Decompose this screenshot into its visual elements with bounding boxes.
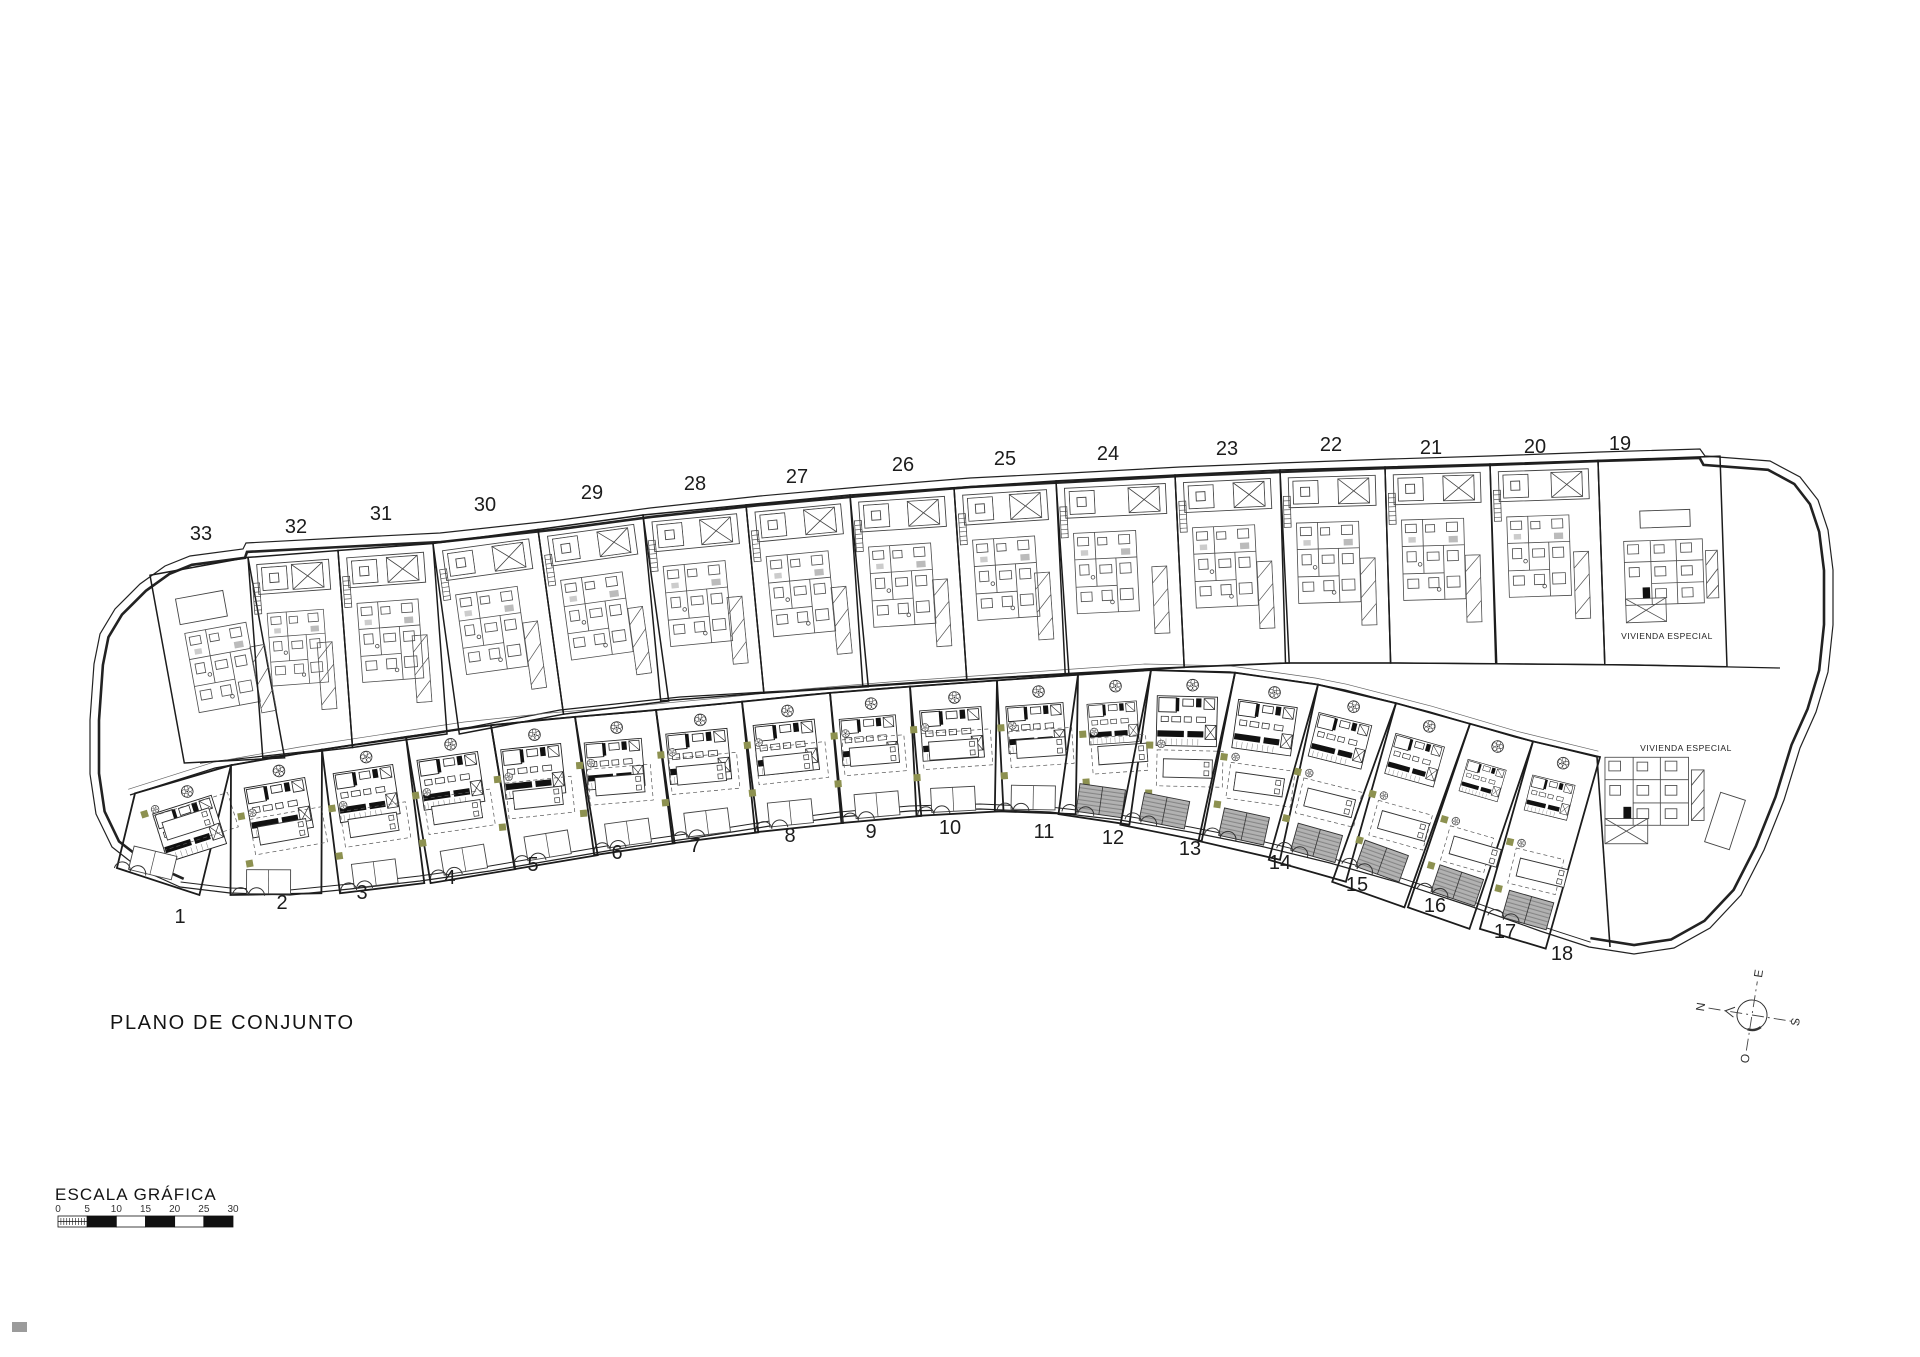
plot-label-12: 12 (1102, 827, 1124, 849)
plot-label-3: 3 (356, 882, 367, 904)
tree-symbol-small (1517, 838, 1526, 847)
special-villa-floorplan (1605, 757, 1704, 843)
compass-rose: NSEO (1686, 960, 1809, 1071)
tree-symbol-small (1379, 791, 1389, 801)
stairs (545, 554, 556, 586)
plot-bottom-11 (995, 675, 1078, 814)
stairs (1388, 493, 1396, 524)
plot-label-20: 20 (1524, 436, 1546, 458)
pool (1233, 772, 1284, 797)
plot-label-21: 21 (1420, 437, 1442, 459)
pool (1016, 737, 1066, 759)
solar-deck-hatch (1152, 566, 1170, 634)
legend-gray-square (12, 1322, 27, 1332)
solar-deck-hatch (412, 635, 432, 703)
tree-symbol-small (841, 729, 849, 737)
villa-floorplan (456, 586, 529, 674)
carport-pergola (597, 528, 631, 557)
plot-label-19: 19 (1609, 433, 1631, 455)
plot-label-2: 2 (276, 892, 287, 914)
villa-floorplan (869, 543, 936, 627)
carport-pergola (492, 542, 526, 571)
plot-label-25: 25 (994, 448, 1016, 470)
villa-floorplan (973, 536, 1040, 620)
villa-floorplan (1308, 712, 1372, 769)
tree-symbol (948, 691, 960, 703)
store-box (657, 523, 684, 548)
compass-letter-north: N (1693, 1001, 1708, 1012)
plot-label-1: 1 (174, 906, 185, 928)
tree-symbol-small (1090, 728, 1098, 736)
store-box (351, 559, 378, 584)
site-plan-drawing: 3332313029282726252423222120191234567891… (0, 0, 1920, 1357)
stairs (1179, 501, 1187, 532)
tree-symbol (1268, 686, 1281, 699)
stairs (1493, 490, 1501, 521)
scale-tick-15: 15 (140, 1204, 152, 1215)
site-boundary-outer (90, 449, 1833, 954)
pool (1516, 858, 1568, 887)
stairs (958, 514, 967, 545)
villa-floorplan (663, 561, 733, 647)
plot-label-28: 28 (684, 473, 706, 495)
scale-tick-20: 20 (169, 1204, 181, 1215)
tree-symbol (444, 738, 457, 751)
tree-symbol (1347, 700, 1361, 714)
plot-top-29 (538, 515, 669, 714)
tree-symbol-small (921, 723, 929, 731)
north-arrow (1725, 1006, 1735, 1017)
carport-pergola (1551, 471, 1583, 497)
tree-symbol (1187, 679, 1199, 691)
tree-symbol (781, 705, 794, 718)
plot-label-4: 4 (444, 867, 455, 889)
plot-top-33 (150, 557, 285, 763)
solar-deck-hatch (628, 606, 652, 674)
scale-tick-0: 0 (55, 1204, 61, 1215)
villa-floorplan (1524, 775, 1575, 820)
carport-pergola (907, 499, 940, 526)
tree-symbol-small (587, 759, 595, 767)
carport-pergola (699, 517, 732, 545)
plot-top-32 (248, 551, 353, 758)
special-villa-label-2: VIVIENDA ESPECIAL (1640, 743, 1732, 753)
scale-tick-5: 5 (84, 1204, 90, 1215)
tree-symbol (865, 697, 878, 710)
compass-letter-east: E (1751, 968, 1766, 978)
tree-symbol-small (1008, 721, 1016, 729)
solar-deck-hatch (831, 586, 852, 654)
solar-deck-hatch (1360, 558, 1377, 625)
special-villa-pool (1705, 792, 1746, 849)
plot-bottom-12 (1059, 670, 1152, 825)
villa-floorplan (185, 622, 261, 712)
tree-symbol (694, 714, 707, 727)
tree-symbol-small (1451, 816, 1461, 826)
stairs (854, 520, 863, 551)
solar-deck-hatch (523, 621, 547, 689)
villa-floorplan (1296, 521, 1360, 603)
plot-label-9: 9 (865, 821, 876, 843)
pool (676, 762, 727, 785)
tree-symbol (272, 764, 286, 778)
villa-floorplan (1385, 733, 1445, 787)
tree-symbol-small (1305, 768, 1314, 777)
villa-floorplan (1401, 518, 1465, 600)
plot-label-26: 26 (892, 454, 914, 476)
store-box (1398, 477, 1424, 501)
carport-pergola (1338, 478, 1370, 504)
store-box (447, 550, 475, 576)
plot-label-32: 32 (285, 516, 307, 538)
villa-floorplan (1156, 696, 1217, 747)
stairs (343, 576, 352, 607)
tree-symbol (1422, 719, 1436, 733)
tree-symbol (180, 784, 195, 799)
plot-label-33: 33 (190, 523, 212, 545)
compass-letter-west: O (1737, 1053, 1752, 1064)
tree-symbol-small (1157, 740, 1165, 748)
plot-top-25 (954, 481, 1069, 680)
plot-label-17: 17 (1494, 921, 1516, 943)
plot-bottom-7 (654, 702, 758, 844)
tree-symbol (359, 750, 372, 763)
store-box (1069, 490, 1095, 514)
stairs (751, 530, 761, 562)
tree-symbol (1032, 685, 1044, 697)
plot-label-18: 18 (1551, 943, 1573, 965)
plot-label-23: 23 (1216, 438, 1238, 460)
plot-top-26 (850, 488, 967, 687)
tree-symbol (610, 721, 623, 734)
carport-pergola (1009, 493, 1042, 520)
store-box (552, 536, 580, 562)
plot-top-21 (1385, 464, 1496, 664)
plot-top-27 (746, 495, 868, 693)
page-title: PLANO DE CONJUNTO (110, 1012, 355, 1035)
pool (849, 744, 899, 766)
plot-bottom-2 (230, 750, 329, 896)
plot-top-22 (1280, 467, 1391, 663)
store-box (967, 497, 993, 522)
tree-symbol-small (1231, 753, 1240, 762)
site-plan-page: 3332313029282726252423222120191234567891… (0, 0, 1920, 1357)
plot-label-7: 7 (689, 835, 700, 857)
special-villa-label-1: VIVIENDA ESPECIAL (1621, 631, 1713, 641)
plot-label-27: 27 (786, 466, 808, 488)
plot-label-22: 22 (1320, 434, 1342, 456)
tree-symbol (1556, 756, 1570, 770)
tree-symbol (528, 728, 541, 741)
plot-bottom-10 (908, 680, 1004, 816)
plot-label-24: 24 (1097, 443, 1119, 465)
villa-floorplan (766, 551, 836, 637)
villa-floorplan (561, 572, 634, 660)
villa-floorplan (357, 599, 424, 682)
stairs (1060, 507, 1068, 538)
villa-floorplan (1232, 699, 1298, 756)
store-box (261, 566, 288, 591)
stairs (440, 569, 451, 601)
scale-tick-10: 10 (111, 1204, 123, 1215)
store-box (1503, 474, 1529, 498)
carport-pergola (803, 507, 836, 535)
pool (595, 774, 645, 796)
plot-top-30 (433, 530, 564, 735)
scale-bar-label: ESCALA GRÁFICA (55, 1185, 217, 1205)
pool (1377, 811, 1429, 842)
plot-bottom-5 (489, 717, 598, 869)
scale-tick-25: 25 (198, 1204, 210, 1215)
villa-floorplan (1459, 759, 1506, 802)
villa-floorplan (1193, 525, 1259, 608)
special-parcel-divider (1597, 757, 1610, 947)
scale-bar: 051015202530 (55, 1204, 239, 1227)
plot-label-8: 8 (784, 825, 795, 847)
villa-floorplan (1087, 701, 1139, 745)
plot-top-24 (1056, 475, 1184, 674)
store-box (1188, 485, 1214, 509)
plot-label-31: 31 (370, 503, 392, 525)
tree-symbol (1490, 739, 1504, 753)
villa-floorplan (1074, 530, 1140, 613)
store-box (1293, 480, 1319, 504)
carport-pergola (291, 562, 324, 589)
plot-top-20 (1490, 460, 1605, 664)
plot-label-11: 11 (1034, 821, 1055, 843)
pool (929, 739, 979, 761)
plot-top-23 (1175, 470, 1289, 667)
solar-deck-hatch (1465, 555, 1482, 622)
tree-symbol (1109, 680, 1121, 692)
solar-deck-hatch (1574, 551, 1591, 618)
plot-label-10: 10 (939, 817, 961, 839)
carport-pergola (1443, 475, 1475, 501)
pool (1163, 759, 1212, 778)
pool (1304, 788, 1356, 818)
pool (1098, 743, 1148, 765)
special-villa-parcel-2 (1605, 757, 1745, 849)
stairs (1283, 496, 1291, 527)
plot-label-30: 30 (474, 494, 496, 516)
special-villa-floorplan (1624, 538, 1720, 622)
plot-label-29: 29 (581, 482, 603, 504)
solar-deck-hatch (1257, 561, 1275, 629)
scale-tick-30: 30 (227, 1204, 239, 1215)
store-box (863, 504, 889, 529)
plot-bottom-3 (321, 737, 425, 893)
carport-pergola (386, 555, 419, 582)
plot-label-6: 6 (611, 842, 622, 864)
carport-pergola (1233, 481, 1265, 507)
carport-pergola (1128, 486, 1160, 512)
villa-floorplan (1507, 515, 1572, 597)
compass-letter-south: S (1788, 1017, 1803, 1027)
solar-deck-hatch (317, 642, 337, 710)
plot-top-31 (338, 544, 447, 748)
pool (1449, 836, 1501, 867)
store-box (760, 513, 787, 538)
plot-label-5: 5 (527, 854, 538, 876)
solar-deck-hatch (727, 596, 748, 664)
plot-top-28 (643, 505, 764, 701)
